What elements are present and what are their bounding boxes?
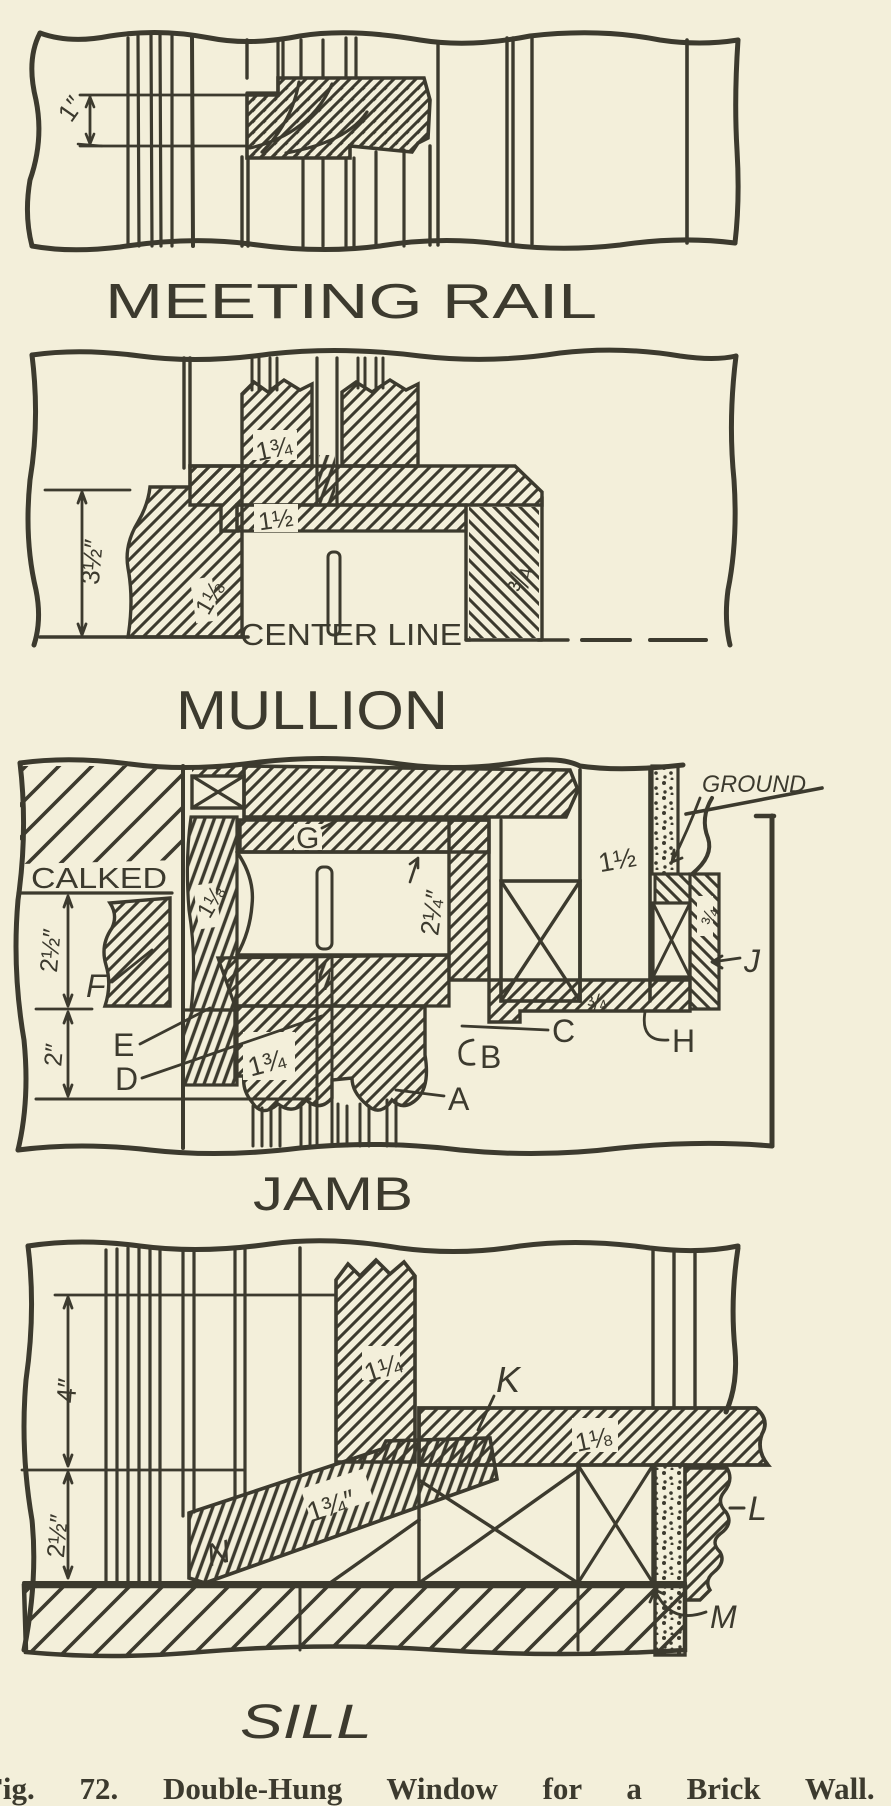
svg-text:J: J: [743, 943, 761, 979]
svg-text:E: E: [113, 1027, 134, 1063]
svg-text:A: A: [448, 1081, 470, 1117]
svg-text:1½: 1½: [596, 842, 638, 878]
svg-text:G: G: [296, 822, 319, 855]
svg-text:2½″: 2½″: [42, 1513, 74, 1559]
svg-text:1½: 1½: [257, 504, 295, 537]
svg-text:H: H: [672, 1023, 695, 1059]
svg-text:L: L: [748, 1490, 767, 1528]
svg-text:M: M: [710, 1599, 737, 1635]
svg-text:B: B: [480, 1039, 501, 1075]
svg-text:CALKED: CALKED: [31, 863, 167, 895]
svg-text:2½″: 2½″: [35, 927, 67, 973]
svg-text:C: C: [552, 1013, 575, 1049]
svg-text:CENTER LINE: CENTER LINE: [240, 617, 462, 652]
svg-text:JAMB: JAMB: [253, 1167, 413, 1220]
svg-text:3½″: 3½″: [75, 538, 109, 586]
svg-text:2″: 2″: [39, 1042, 69, 1067]
svg-text:F: F: [86, 968, 108, 1004]
svg-text:D: D: [115, 1061, 138, 1097]
svg-text:2¼″: 2¼″: [414, 888, 450, 937]
svg-text:MULLION: MULLION: [176, 679, 448, 741]
svg-text:MEETING RAIL: MEETING RAIL: [105, 275, 597, 329]
svg-text:Fig. 72. Double-Hung Window fo: Fig. 72. Double-Hung Window for a Brick …: [0, 1771, 875, 1806]
svg-text:4″: 4″: [51, 1377, 83, 1405]
svg-text:K: K: [496, 1359, 522, 1400]
svg-text:SILL: SILL: [240, 1696, 372, 1749]
